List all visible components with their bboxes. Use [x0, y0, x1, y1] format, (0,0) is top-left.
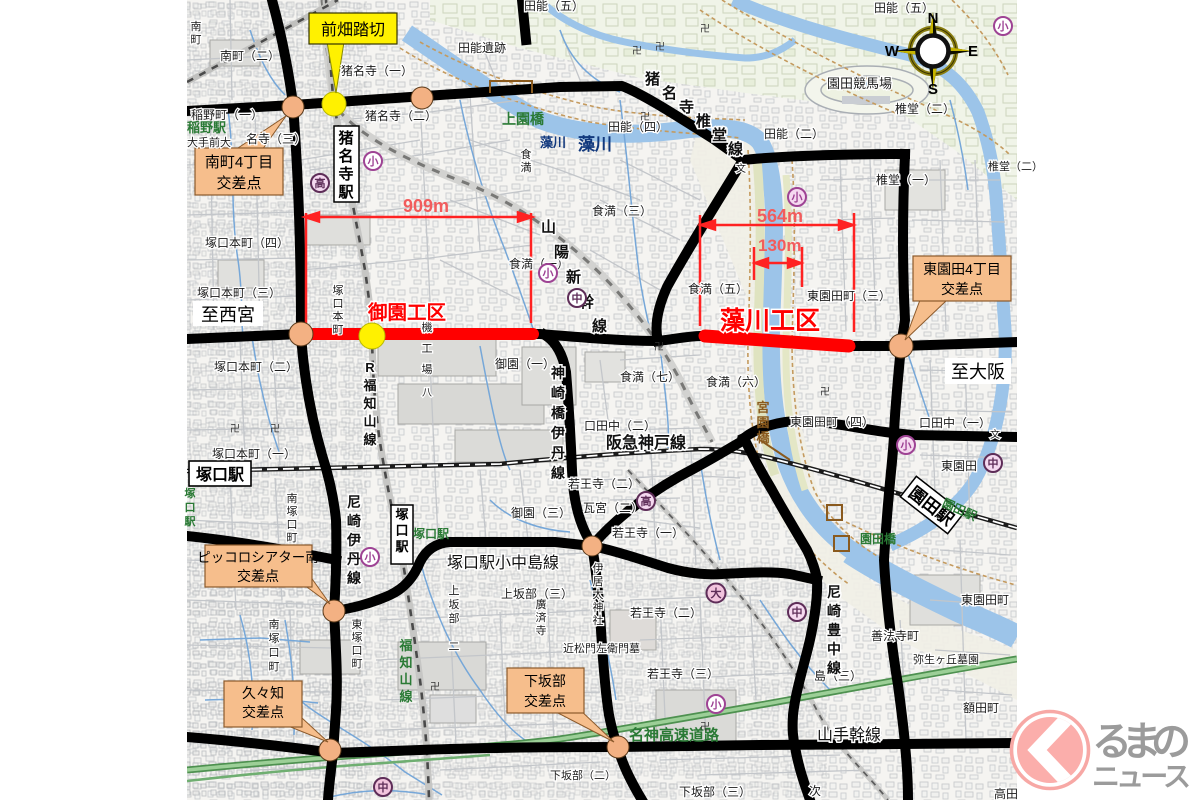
svg-text:卍: 卍 [655, 41, 665, 53]
svg-text:線: 線 [728, 140, 743, 158]
svg-text:南: 南 [191, 20, 202, 33]
svg-text:小: 小 [542, 266, 554, 280]
svg-text:椎堂（二）: 椎堂（二） [895, 101, 955, 116]
svg-text:町: 町 [269, 661, 280, 673]
svg-text:中: 中 [792, 605, 803, 619]
svg-text:東園田町（三）: 東園田町（三） [807, 289, 891, 303]
svg-text:寺: 寺 [338, 165, 353, 183]
svg-text:堂: 堂 [712, 126, 727, 144]
svg-text:東園田町: 東園田町 [961, 593, 1009, 607]
svg-text:善法寺町: 善法寺町 [871, 628, 919, 643]
svg-text:宮: 宮 [756, 400, 769, 415]
svg-text:寺: 寺 [679, 98, 694, 116]
svg-text:豊: 豊 [827, 622, 841, 638]
svg-text:食満（七）: 食満（七） [620, 369, 680, 384]
svg-text:中: 中 [572, 291, 583, 305]
svg-text:御園工区: 御園工区 [367, 301, 446, 324]
svg-text:崎: 崎 [827, 603, 841, 619]
svg-text:駅: 駅 [184, 515, 196, 528]
svg-text:尼: 尼 [347, 494, 361, 510]
svg-text:るまの: るまの [1092, 720, 1191, 764]
svg-text:椎: 椎 [696, 112, 711, 130]
svg-text:田能（四）: 田能（四） [608, 120, 668, 134]
svg-text:神: 神 [593, 600, 604, 614]
svg-text:N: N [928, 10, 939, 27]
svg-text:食: 食 [521, 147, 532, 161]
svg-text:W: W [885, 43, 900, 60]
svg-text:福: 福 [398, 638, 412, 653]
svg-text:高: 高 [641, 494, 652, 508]
svg-text:食満（六）: 食満（六） [706, 374, 766, 389]
svg-text:口: 口 [352, 645, 363, 657]
svg-text:田能（五）: 田能（五） [524, 0, 584, 13]
svg-text:塚: 塚 [287, 505, 298, 518]
svg-text:伊: 伊 [346, 532, 361, 548]
svg-text:高: 高 [315, 176, 326, 190]
svg-text:高田: 高田 [994, 786, 1018, 800]
svg-text:卍: 卍 [270, 423, 280, 435]
svg-text:若王寺（二）: 若王寺（二） [568, 477, 640, 491]
svg-text:塚口駅: 塚口駅 [196, 466, 245, 484]
svg-text:塚口本町（一）: 塚口本町（一） [212, 447, 296, 461]
svg-text:藻川: 藻川 [540, 135, 566, 150]
svg-text:場: 場 [422, 363, 433, 376]
svg-text:卍: 卍 [700, 721, 710, 733]
svg-text:線: 線 [347, 570, 361, 586]
svg-text:至西宮: 至西宮 [201, 305, 255, 325]
svg-text:塚: 塚 [185, 486, 196, 500]
svg-text:線: 線 [827, 660, 841, 676]
svg-text:山: 山 [399, 672, 412, 687]
svg-text:S: S [928, 81, 938, 98]
svg-text:田能（二）: 田能（二） [764, 127, 824, 141]
svg-text:口田中（一）: 口田中（一） [919, 415, 991, 430]
svg-text:椎堂（二）: 椎堂（二） [988, 159, 1043, 173]
svg-text:瓦宮（二）: 瓦宮（二） [583, 500, 643, 515]
svg-text:交差点: 交差点 [237, 568, 279, 584]
svg-text:食満（五）: 食満（五） [688, 281, 748, 296]
svg-text:塚口本町（二）: 塚口本町（二） [214, 360, 298, 374]
svg-text:福: 福 [362, 378, 376, 393]
svg-text:部: 部 [449, 611, 460, 625]
svg-text:山: 山 [541, 219, 556, 236]
svg-text:崎: 崎 [347, 513, 361, 529]
svg-text:口: 口 [395, 523, 408, 538]
svg-text:口: 口 [185, 501, 196, 514]
svg-text:塚: 塚 [395, 507, 408, 522]
svg-text:ニュース: ニュース [1092, 761, 1191, 792]
svg-text:大手前大: 大手前大 [187, 135, 231, 149]
svg-text:稲野駅: 稲野駅 [187, 120, 227, 135]
svg-text:若王寺（二）: 若王寺（二） [630, 606, 702, 620]
svg-text:寺: 寺 [536, 624, 547, 637]
svg-text:上園橋: 上園橋 [502, 111, 545, 127]
svg-text:猪名寺（一）: 猪名寺（一） [341, 63, 413, 78]
svg-text:小: 小 [791, 190, 803, 204]
svg-text:伊: 伊 [593, 562, 604, 575]
svg-text:小: 小 [710, 697, 722, 711]
svg-text:猪名寺（二）: 猪名寺（二） [365, 108, 437, 123]
svg-text:上: 上 [449, 584, 460, 597]
svg-text:文: 文 [990, 428, 1000, 441]
svg-text:太: 太 [593, 588, 604, 601]
svg-text:町: 町 [191, 34, 202, 46]
svg-text:線: 線 [592, 317, 607, 335]
svg-text:居: 居 [593, 576, 604, 588]
svg-text:駅: 駅 [337, 184, 354, 201]
svg-text:塚口駅小中島線: 塚口駅小中島線 [447, 554, 559, 572]
svg-text:564m: 564m [757, 206, 803, 226]
svg-text:卍: 卍 [700, 23, 710, 35]
svg-text:E: E [968, 43, 978, 60]
svg-text:口: 口 [333, 298, 344, 310]
svg-text:線: 線 [363, 432, 377, 447]
svg-text:若王寺（三）: 若王寺（三） [647, 667, 719, 681]
svg-text:下坂部: 下坂部 [524, 673, 566, 689]
svg-text:南: 南 [269, 618, 280, 631]
svg-text:卍: 卍 [632, 45, 642, 57]
svg-text:丹: 丹 [347, 551, 361, 567]
svg-text:東: 東 [352, 618, 363, 631]
svg-text:名: 名 [662, 84, 677, 102]
svg-text:小: 小 [367, 154, 379, 168]
svg-text:中: 中 [827, 641, 841, 657]
svg-text:満: 満 [521, 161, 532, 174]
svg-text:交差点: 交差点 [242, 704, 284, 720]
svg-text:阪急神戸線: 阪急神戸線 [606, 433, 686, 452]
svg-text:南町（二）: 南町（二） [220, 48, 280, 63]
svg-text:山手幹線: 山手幹線 [817, 725, 881, 744]
svg-text:田能遺跡: 田能遺跡 [458, 40, 506, 55]
svg-text:機: 機 [422, 320, 433, 334]
svg-text:丹: 丹 [551, 445, 565, 461]
svg-text:塚口本町（三）: 塚口本町（三） [197, 286, 281, 300]
svg-text:東園田4丁目: 東園田4丁目 [923, 261, 1001, 277]
svg-text:塚: 塚 [269, 632, 280, 645]
svg-text:卍: 卍 [820, 386, 830, 398]
svg-text:下坂部（三）: 下坂部（三） [679, 784, 751, 799]
svg-text:知: 知 [399, 655, 412, 670]
svg-text:東園田町（四）: 東園田町（四） [790, 415, 874, 429]
svg-text:塚: 塚 [352, 631, 363, 644]
svg-text:大: 大 [711, 586, 722, 600]
svg-text:山: 山 [363, 414, 376, 429]
svg-text:橋: 橋 [551, 405, 566, 421]
svg-text:済: 済 [536, 610, 547, 624]
svg-text:知: 知 [363, 396, 376, 411]
svg-text:線: 線 [399, 689, 413, 704]
svg-text:小: 小 [997, 19, 1009, 33]
svg-text:卍: 卍 [654, 341, 664, 353]
svg-text:工: 工 [422, 343, 433, 355]
svg-text:東園田: 東園田 [941, 459, 977, 473]
svg-text:猪: 猪 [337, 129, 353, 147]
svg-text:藻川工区: 藻川工区 [720, 307, 820, 335]
svg-text:田能（五）: 田能（五） [874, 1, 934, 15]
svg-text:口: 口 [269, 647, 280, 659]
svg-text:近松門左衛門墓: 近松門左衛門墓 [563, 641, 640, 655]
svg-text:線: 線 [551, 465, 565, 481]
svg-text:卍: 卍 [230, 423, 240, 435]
svg-text:塚: 塚 [333, 284, 344, 297]
svg-text:駅: 駅 [394, 539, 409, 554]
svg-text:下坂部（二）: 下坂部（二） [550, 768, 616, 782]
svg-text:卍: 卍 [430, 681, 440, 693]
svg-text:園田競馬場: 園田競馬場 [827, 76, 892, 91]
svg-text:R: R [365, 360, 375, 375]
svg-text:中: 中 [988, 456, 999, 470]
svg-text:口: 口 [287, 519, 298, 531]
svg-text:口田中（二）: 口田中（二） [584, 418, 656, 433]
svg-text:南: 南 [287, 492, 298, 505]
svg-text:名寺（三）: 名寺（三） [246, 131, 306, 146]
svg-text:本: 本 [333, 309, 344, 323]
svg-text:文: 文 [736, 162, 746, 175]
svg-text:崎: 崎 [551, 385, 565, 401]
svg-text:町: 町 [287, 532, 298, 544]
svg-text:藻川: 藻川 [578, 134, 612, 154]
svg-text:塚口駅: 塚口駅 [413, 527, 450, 541]
svg-text:小: 小 [900, 438, 912, 452]
svg-text:130m: 130m [758, 236, 801, 255]
svg-text:弥生ヶ丘墓園: 弥生ヶ丘墓園 [913, 652, 979, 666]
svg-text:町: 町 [333, 324, 344, 336]
svg-text:若王寺（一）: 若王寺（一） [612, 526, 684, 540]
svg-text:坂: 坂 [449, 598, 460, 611]
svg-text:交差点: 交差点 [216, 174, 261, 192]
svg-text:中: 中 [378, 780, 389, 794]
svg-text:交差点: 交差点 [941, 281, 983, 297]
svg-text:尼: 尼 [827, 584, 841, 600]
svg-text:椎堂（一）: 椎堂（一） [876, 172, 936, 187]
svg-text:小: 小 [364, 550, 376, 564]
svg-text:次: 次 [809, 784, 821, 798]
svg-text:909m: 909m [403, 196, 449, 216]
svg-text:町: 町 [352, 658, 363, 670]
svg-text:御園（一）: 御園（一） [495, 356, 555, 371]
svg-text:八: 八 [422, 388, 432, 399]
svg-text:久々知: 久々知 [242, 685, 284, 701]
svg-text:二: 二 [449, 641, 460, 653]
svg-text:前畑踏切: 前畑踏切 [321, 21, 385, 39]
svg-text:交差点: 交差点 [524, 693, 566, 709]
svg-text:塚口本町（四）: 塚口本町（四） [205, 236, 289, 250]
svg-text:園田橋: 園田橋 [860, 531, 897, 546]
svg-text:社: 社 [593, 613, 604, 627]
svg-text:額田町: 額田町 [963, 701, 999, 715]
svg-text:伊: 伊 [550, 425, 565, 441]
svg-text:神: 神 [551, 365, 565, 381]
svg-text:御園（三）: 御園（三） [511, 505, 571, 520]
svg-text:ピッコロシアター南: ピッコロシアター南 [197, 550, 319, 565]
svg-text:卍: 卍 [640, 111, 650, 123]
svg-text:名: 名 [338, 147, 353, 165]
svg-text:南町4丁目: 南町4丁目 [205, 154, 273, 171]
svg-text:至大阪: 至大阪 [951, 362, 1005, 382]
svg-text:食満（三）: 食満（三） [592, 203, 652, 218]
svg-text:陽: 陽 [554, 244, 569, 261]
svg-text:新: 新 [566, 268, 581, 286]
svg-text:猪: 猪 [644, 70, 660, 88]
svg-text:廣: 廣 [536, 597, 547, 611]
svg-text:園: 園 [756, 415, 769, 430]
